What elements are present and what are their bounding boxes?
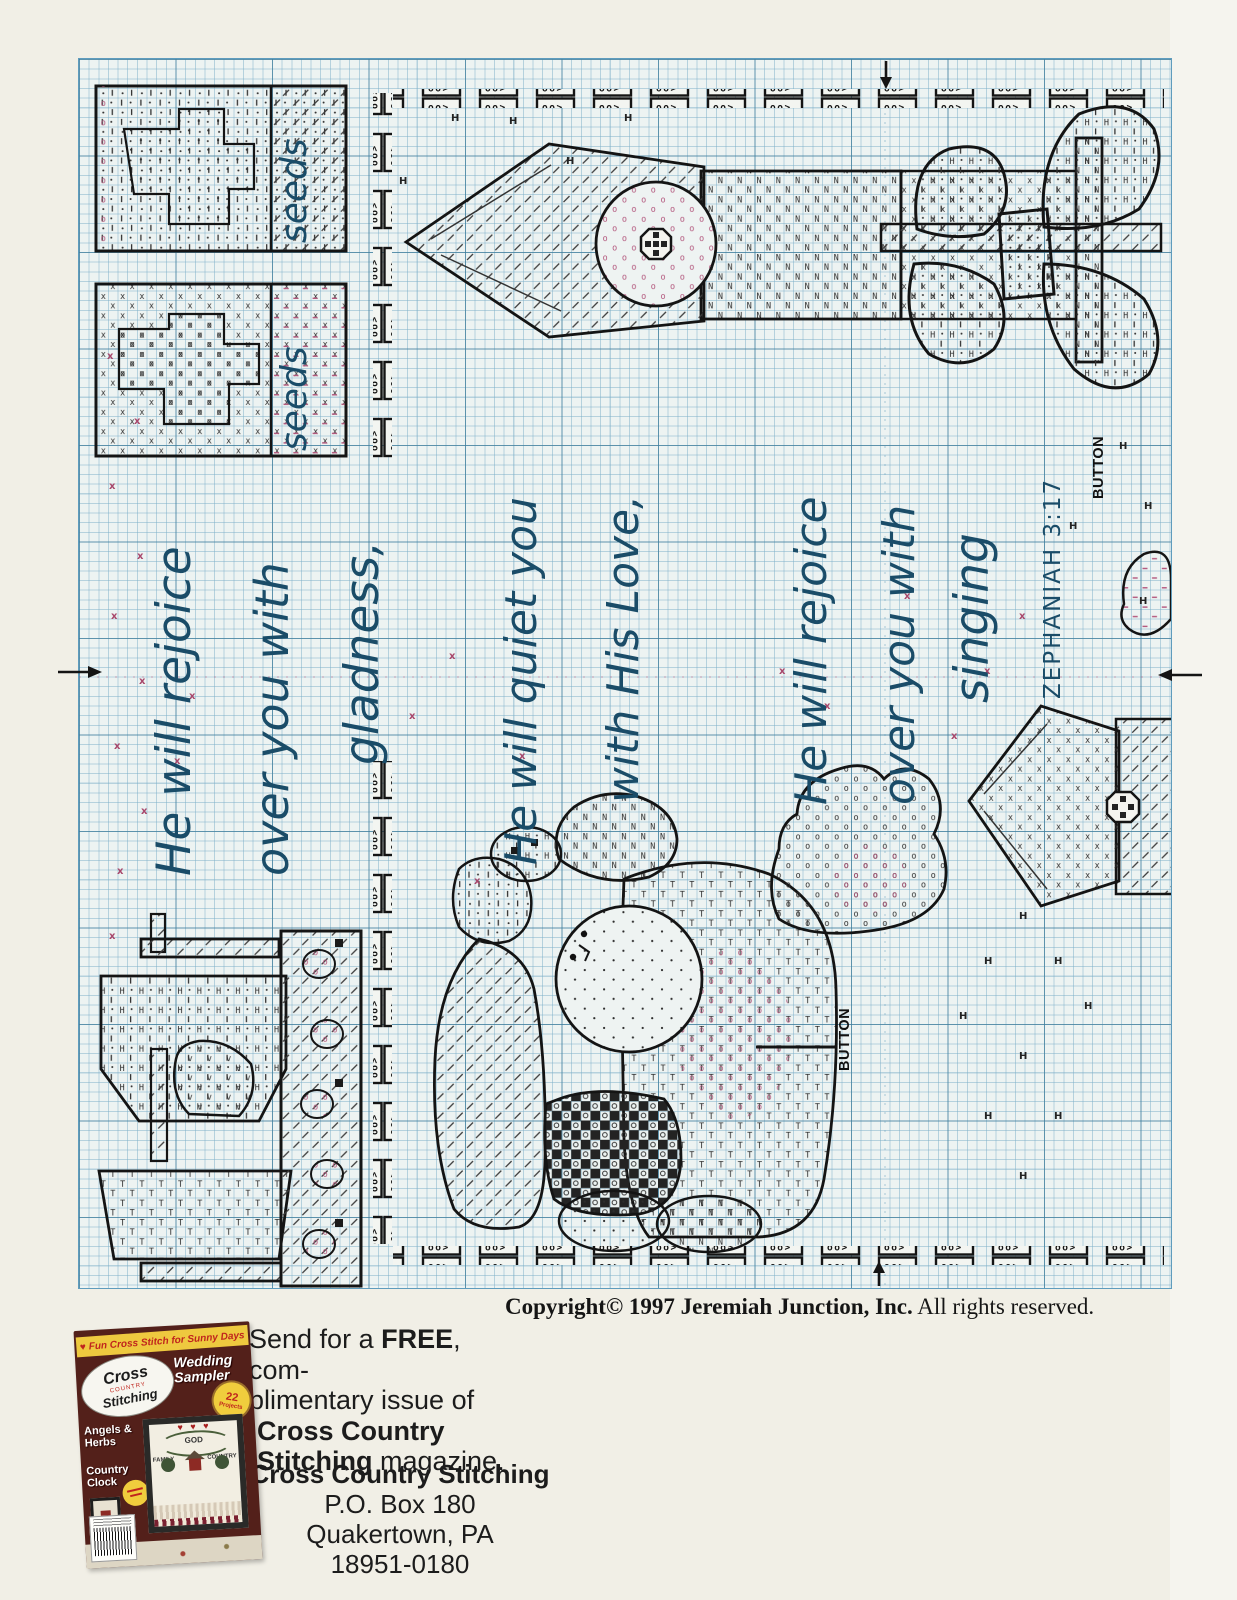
svg-text:x: x <box>109 931 116 942</box>
svg-text:x: x <box>111 611 118 622</box>
svg-text:H: H <box>451 113 459 124</box>
address-name: Cross Country Stitching <box>250 1460 550 1490</box>
publisher-address: Cross Country Stitching P.O. Box 180 Qua… <box>250 1460 550 1580</box>
heart-icon: ♥ <box>79 1341 86 1352</box>
svg-text:x: x <box>137 551 144 562</box>
verse-reference: ZEPHANIAH 3:17 <box>1041 399 1067 699</box>
svg-text:H: H <box>1119 441 1127 452</box>
offer-line-1: Send for a FREE, com- <box>249 1324 519 1385</box>
cover-side-feature-1: Angels & Herbs <box>84 1424 133 1450</box>
svg-text:x: x <box>951 731 958 742</box>
free-issue-offer: Send for a FREE, com- plimentary issue o… <box>249 1324 519 1477</box>
svg-text:x: x <box>1019 611 1026 622</box>
address-box: P.O. Box 180 <box>250 1490 550 1520</box>
center-marker-left <box>58 664 104 680</box>
svg-text:H: H <box>566 156 574 167</box>
svg-text:H: H <box>1019 1051 1027 1062</box>
page-right-margin <box>1170 0 1237 1600</box>
address-city: Quakertown, PA <box>250 1520 550 1550</box>
wheelbarrow-motif <box>99 914 361 1286</box>
house-icon <box>189 1458 202 1471</box>
verse-text: over you with <box>875 377 924 805</box>
svg-text:H: H <box>1054 1111 1062 1122</box>
border-blocks-left-upper <box>373 93 392 461</box>
cross-stitch-chart: oo oo NN xx TT vv <box>78 58 1172 1289</box>
verse-text: singing <box>947 383 1000 703</box>
svg-text:H: H <box>1069 521 1077 532</box>
seeds-label-bottom: seeds <box>275 299 315 451</box>
svg-text:x: x <box>107 351 114 362</box>
address-zip: 18951-0180 <box>250 1550 550 1580</box>
magazine-cover: ♥ Fun Cross Stitch for Sunny Days Cross … <box>73 1321 262 1568</box>
svg-text:x: x <box>134 416 141 427</box>
border-blocks-bottom <box>393 1246 1164 1265</box>
svg-text:H: H <box>984 1111 992 1122</box>
center-marker-right <box>1156 667 1202 683</box>
seeds-label-top: seeds <box>275 101 315 243</box>
svg-text:x: x <box>409 711 416 722</box>
svg-text:x: x <box>139 676 146 687</box>
offer-line-2: plimentary issue of <box>249 1385 519 1416</box>
barcode <box>89 1514 137 1562</box>
copyright-main: Copyright© 1997 Jeremiah Junction, Inc. <box>505 1294 913 1319</box>
svg-text:x: x <box>114 741 121 752</box>
cover-sampler-picture: ♥ ♥ ♥ GOD FAMILY COUNTRY <box>143 1414 249 1533</box>
svg-text:H: H <box>509 116 517 127</box>
leaf-motif <box>1121 552 1171 635</box>
border-blocks-left-lower <box>373 761 392 1244</box>
tree-icon <box>215 1455 230 1470</box>
svg-text:x: x <box>474 876 481 887</box>
offer-line-3: Cross Country <box>257 1416 519 1447</box>
svg-text:H: H <box>1144 501 1152 512</box>
verse-text: He will rejoice <box>149 466 202 876</box>
center-marker-top <box>880 61 892 89</box>
svg-text:x: x <box>779 666 786 677</box>
verse-text: gladness, <box>337 465 390 765</box>
svg-text:H: H <box>1139 596 1147 607</box>
svg-text:H: H <box>1054 956 1062 967</box>
button-label-top: BUTTON <box>1091 424 1107 499</box>
svg-text:H: H <box>1084 1001 1092 1012</box>
verse-text: with His Love, <box>599 383 648 803</box>
svg-text:H: H <box>1019 911 1027 922</box>
cover-feature: Wedding Sampler <box>173 1351 249 1384</box>
copyright-suffix: All rights reserved. <box>913 1294 1094 1319</box>
tree-icon <box>161 1458 176 1473</box>
svg-text:x: x <box>449 651 456 662</box>
verse-text: over you with <box>247 516 299 876</box>
svg-text:x: x <box>117 866 124 877</box>
button-trowel-motif <box>969 706 1171 906</box>
svg-text:H: H <box>624 113 632 124</box>
svg-text:x: x <box>109 481 116 492</box>
verse-text: He will quiet you <box>497 385 546 865</box>
svg-text:H: H <box>984 956 992 967</box>
svg-text:H: H <box>1019 1171 1027 1182</box>
magazine-logo: Cross COUNTRY Stitching <box>76 1348 180 1425</box>
svg-text:H: H <box>399 176 407 187</box>
border-blocks-top <box>393 89 1164 108</box>
button-label-center: BUTTON <box>837 996 853 1071</box>
scanned-pattern-page: laurie 11.29.04 oo oo NN <box>0 0 1237 1600</box>
copyright-line: Copyright© 1997 Jeremiah Junction, Inc. … <box>505 1294 1195 1320</box>
verse-text: He will rejoice <box>787 375 836 805</box>
svg-text:H: H <box>959 1011 967 1022</box>
